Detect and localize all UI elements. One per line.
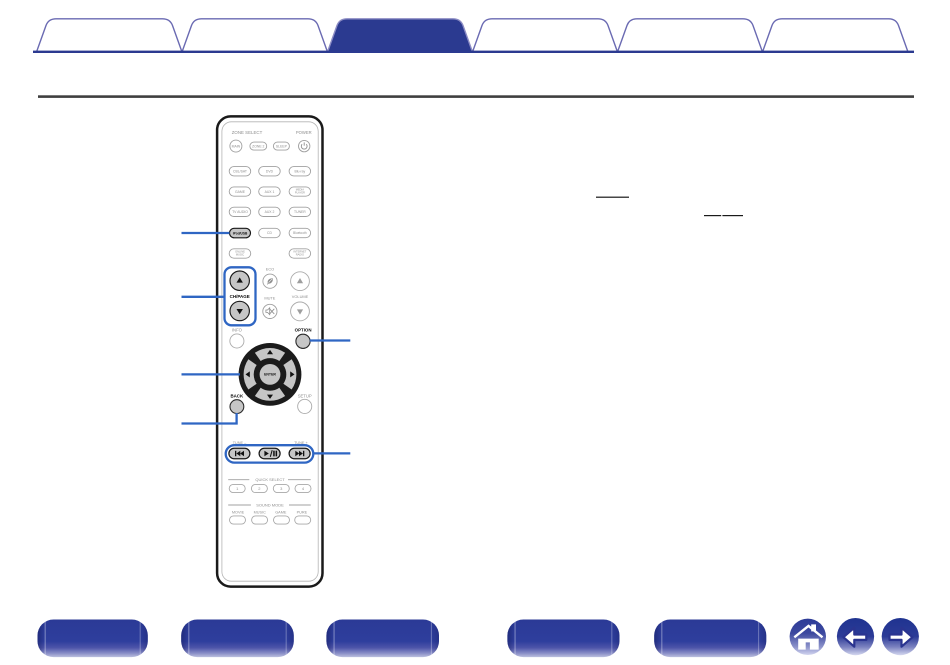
svg-text:RADIO: RADIO: [296, 252, 304, 256]
svg-text:Blu-ray: Blu-ray: [295, 170, 306, 174]
svg-text:ENTER: ENTER: [264, 373, 276, 377]
svg-text:AUX 2: AUX 2: [265, 210, 275, 214]
svg-text:TV AUDIO: TV AUDIO: [232, 210, 248, 214]
svg-text:VOLUME: VOLUME: [292, 294, 309, 299]
svg-text:SLEEP: SLEEP: [276, 145, 288, 149]
svg-text:GAME: GAME: [235, 190, 246, 194]
svg-text:MUSIC: MUSIC: [254, 510, 266, 514]
svg-text:BACK: BACK: [230, 393, 244, 398]
svg-text:ZONE SELECT: ZONE SELECT: [232, 130, 263, 135]
svg-text:QUICK SELECT: QUICK SELECT: [255, 477, 285, 482]
svg-text:AUX 1: AUX 1: [265, 190, 275, 194]
svg-text:OPTION: OPTION: [295, 327, 312, 332]
svg-text:iPod/USB: iPod/USB: [233, 231, 248, 235]
svg-text:CD: CD: [267, 231, 272, 235]
svg-text:TUNER: TUNER: [294, 210, 306, 214]
svg-text:ECO: ECO: [266, 267, 274, 272]
svg-text:PURE: PURE: [297, 510, 308, 514]
svg-text:GAME: GAME: [275, 510, 287, 514]
svg-text:MAIN: MAIN: [232, 144, 241, 148]
svg-text:Bluetooth: Bluetooth: [293, 231, 307, 235]
svg-text:DVD: DVD: [266, 170, 274, 174]
svg-text:POWER: POWER: [296, 130, 312, 135]
svg-text:ZONE 2: ZONE 2: [252, 145, 264, 149]
svg-text:SETUP: SETUP: [298, 393, 312, 398]
svg-text:CBL/SAT: CBL/SAT: [233, 170, 247, 174]
svg-text:MUSIC: MUSIC: [236, 252, 244, 256]
svg-text:MUTE: MUTE: [264, 296, 275, 301]
svg-text:MOVIE: MOVIE: [232, 510, 245, 514]
svg-text:INFO: INFO: [232, 328, 243, 333]
svg-text:SOUND MODE: SOUND MODE: [256, 502, 284, 507]
svg-text:PLAYER: PLAYER: [295, 191, 305, 195]
svg-text:CH/PAGE: CH/PAGE: [230, 294, 250, 299]
